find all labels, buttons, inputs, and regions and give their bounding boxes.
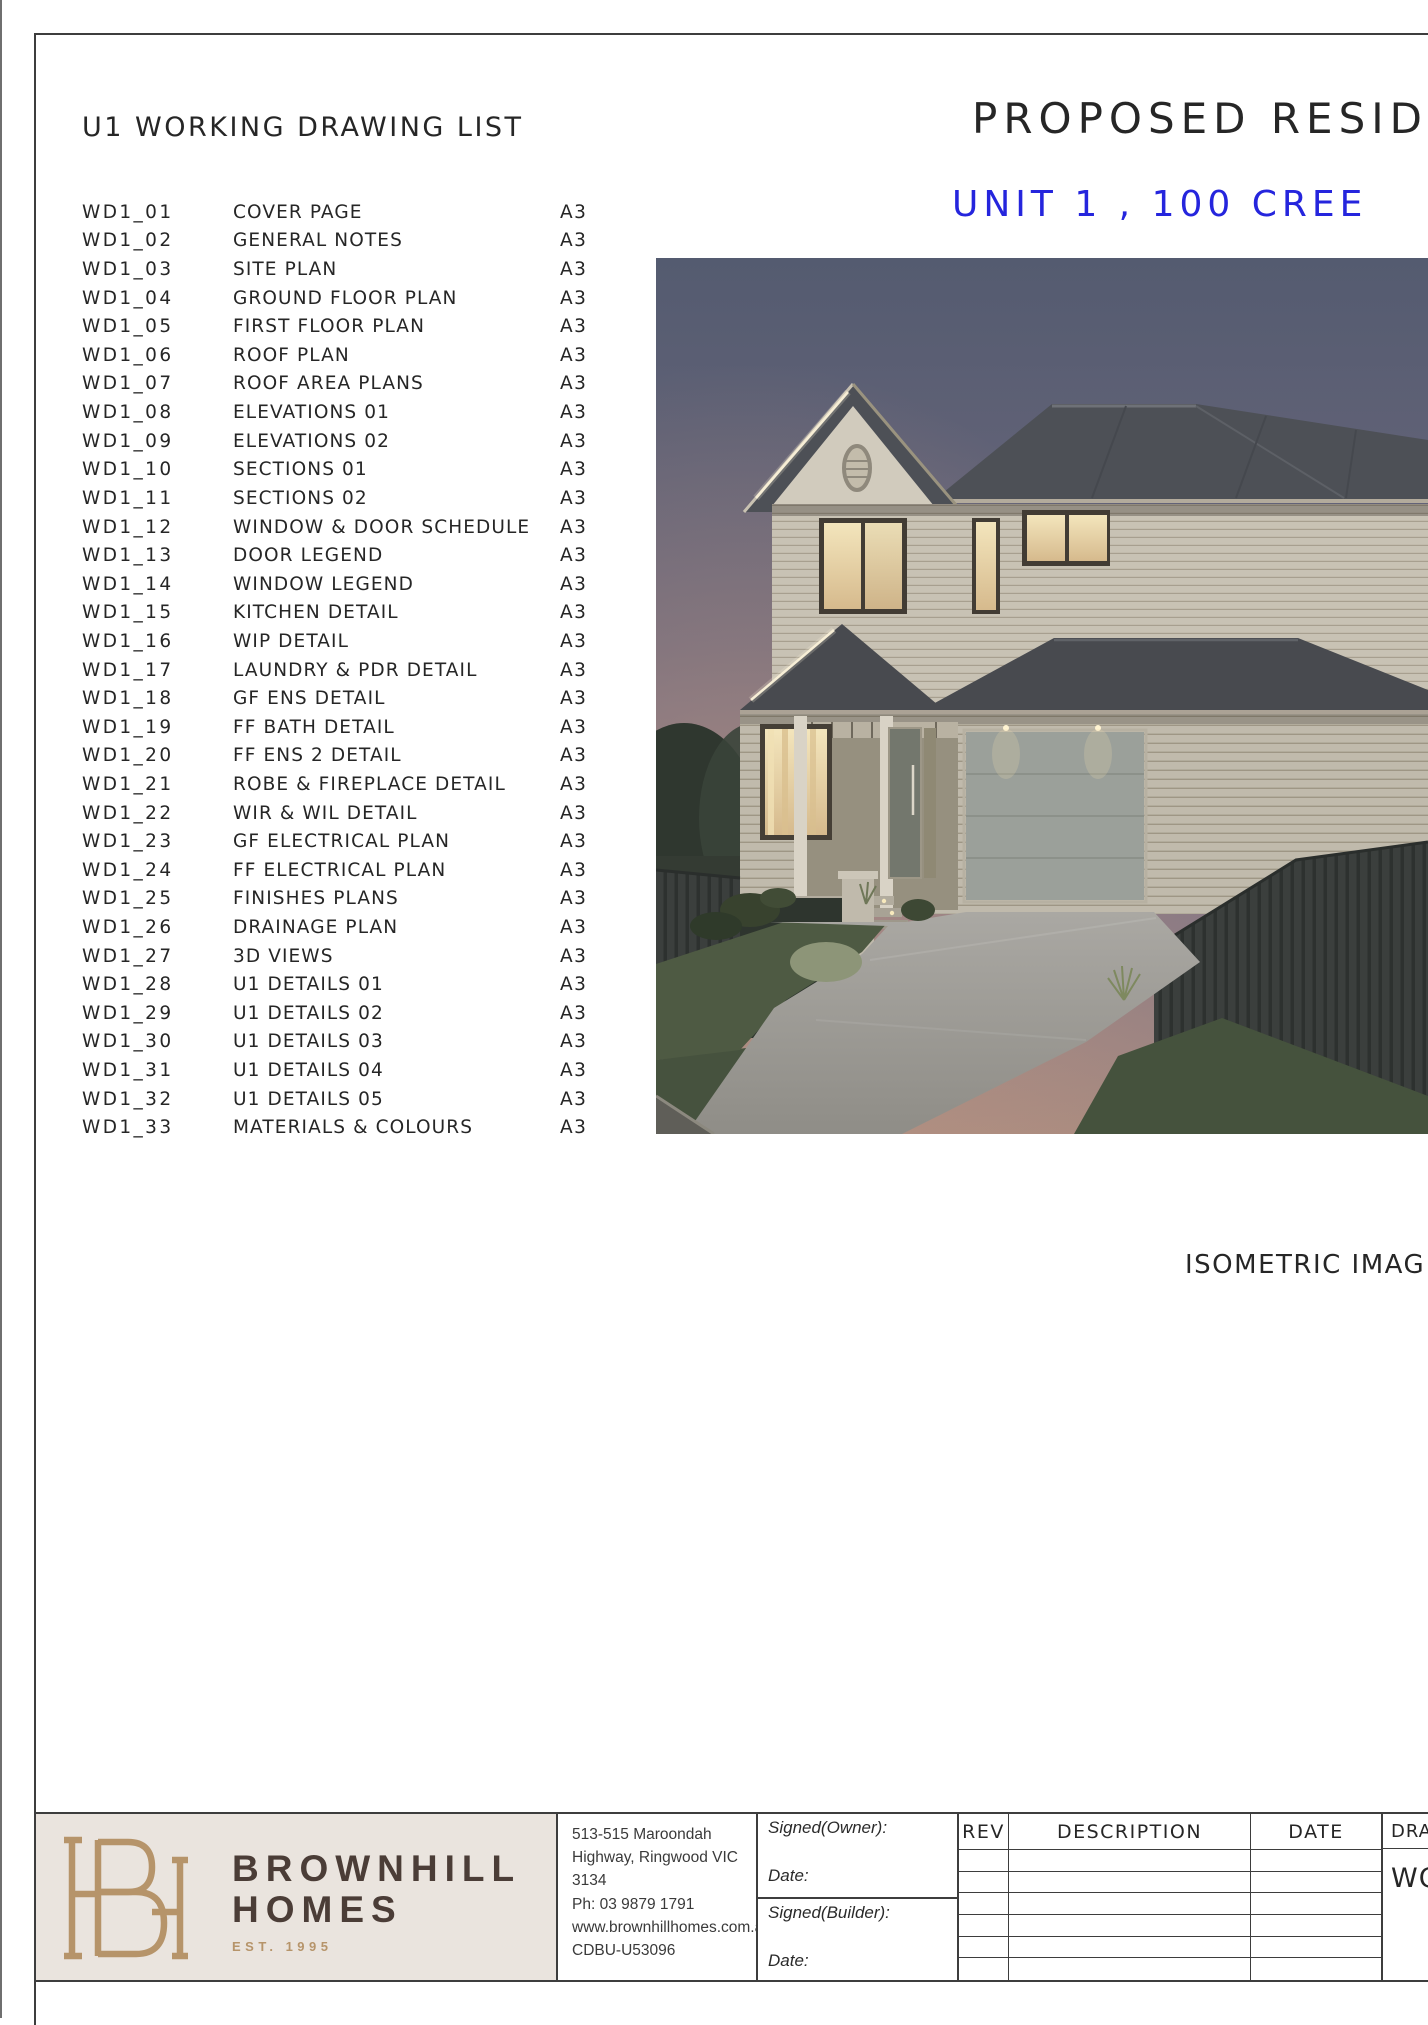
contact-line: 513-515 Maroondah bbox=[572, 1823, 756, 1846]
drawing-list-row: WD1_21ROBE & FIREPLACE DETAILA3 bbox=[82, 770, 702, 799]
porch-post bbox=[794, 716, 807, 910]
drawing-number: WD1_31 bbox=[82, 1060, 233, 1081]
drawing-list-row: WD1_05FIRST FLOOR PLANA3 bbox=[82, 312, 702, 341]
contact-line: www.brownhillhomes.com.au bbox=[572, 1916, 756, 1939]
drawing-list-row: WD1_11SECTIONS 02A3 bbox=[82, 484, 702, 513]
drawing-number: WD1_12 bbox=[82, 517, 233, 538]
sheet-size: A3 bbox=[560, 631, 620, 652]
drawing-title: SITE PLAN bbox=[233, 259, 560, 280]
sheet-size: A3 bbox=[560, 202, 620, 223]
sheet-size: A3 bbox=[560, 345, 620, 366]
drawing-number: WD1_09 bbox=[82, 431, 233, 452]
drawing-title: ROOF PLAN bbox=[233, 345, 560, 366]
drawing-number: WD1_21 bbox=[82, 774, 233, 795]
drawing-list-row: WD1_273D VIEWSA3 bbox=[82, 942, 702, 971]
revision-header-cell: DESCRIPTION bbox=[1009, 1814, 1251, 1850]
revision-empty-cell bbox=[959, 1850, 1009, 1872]
drawing-number: WD1_33 bbox=[82, 1117, 233, 1138]
revision-empty-cell bbox=[1251, 1958, 1381, 1980]
drawing-title: SECTIONS 01 bbox=[233, 459, 560, 480]
drawing-title: GF ELECTRICAL PLAN bbox=[233, 831, 560, 852]
drawing-number: WD1_32 bbox=[82, 1089, 233, 1110]
drawing-list-row: WD1_03SITE PLANA3 bbox=[82, 255, 702, 284]
drawing-title: U1 DETAILS 03 bbox=[233, 1031, 560, 1052]
drawing-title: FINISHES PLANS bbox=[233, 888, 560, 909]
sheet-size: A3 bbox=[560, 574, 620, 595]
sheet-size: A3 bbox=[560, 1117, 620, 1138]
drawing-list-row: WD1_30U1 DETAILS 03A3 bbox=[82, 1028, 702, 1057]
revision-empty-cell bbox=[1009, 1850, 1251, 1872]
drawing-title: GENERAL NOTES bbox=[233, 230, 560, 251]
sheet-size: A3 bbox=[560, 688, 620, 709]
drawing-title: MATERIALS & COLOURS bbox=[233, 1117, 560, 1138]
front-door bbox=[889, 728, 921, 878]
drawing-title: WINDOW LEGEND bbox=[233, 574, 560, 595]
paper-edge-line bbox=[0, 0, 2, 2018]
drawing-list-row: WD1_15KITCHEN DETAILA3 bbox=[82, 599, 702, 628]
revision-empty-cell bbox=[1251, 1850, 1381, 1872]
drawing-number: WD1_23 bbox=[82, 831, 233, 852]
sheet-size: A3 bbox=[560, 917, 620, 938]
sheet-size: A3 bbox=[560, 459, 620, 480]
signature-block: Signed(Owner): Date: Signed(Builder): Da… bbox=[756, 1812, 959, 1982]
revision-empty-cell bbox=[1251, 1872, 1381, 1894]
contact-line: Ph: 03 9879 1791 bbox=[572, 1893, 756, 1916]
sheet-size: A3 bbox=[560, 974, 620, 995]
drawing-number: WD1_25 bbox=[82, 888, 233, 909]
drawing-list-row: WD1_23GF ELECTRICAL PLANA3 bbox=[82, 827, 702, 856]
drawing-list-row: WD1_16WIP DETAILA3 bbox=[82, 627, 702, 656]
sheet-size: A3 bbox=[560, 259, 620, 280]
house-dusk-render-graphic bbox=[656, 258, 1428, 1134]
sheet-size: A3 bbox=[560, 803, 620, 824]
sheet-size: A3 bbox=[560, 860, 620, 881]
drawing-number: WD1_30 bbox=[82, 1031, 233, 1052]
sheet-size: A3 bbox=[560, 545, 620, 566]
drawing-title: FF BATH DETAIL bbox=[233, 717, 560, 738]
revision-empty-cell bbox=[1009, 1872, 1251, 1894]
sheet-size: A3 bbox=[560, 488, 620, 509]
drawing-number: WD1_29 bbox=[82, 1003, 233, 1024]
revision-empty-cell bbox=[1251, 1915, 1381, 1937]
drawing-list-row: WD1_29U1 DETAILS 02A3 bbox=[82, 999, 702, 1028]
isometric-caption: ISOMETRIC IMAG bbox=[1185, 1250, 1425, 1280]
drawing-title: COVER PAGE bbox=[233, 202, 560, 223]
drawing-list-row: WD1_17LAUNDRY & PDR DETAILA3 bbox=[82, 656, 702, 685]
builder-contact-lines: 513-515 MaroondahHighway, Ringwood VIC 3… bbox=[558, 1814, 756, 1962]
drawing-number: WD1_17 bbox=[82, 660, 233, 681]
drawing-list-row: WD1_07ROOF AREA PLANSA3 bbox=[82, 370, 702, 399]
signed-builder-label: Signed(Builder): bbox=[768, 1903, 890, 1923]
revision-empty-cell bbox=[1009, 1937, 1251, 1959]
drawing-list-row: WD1_01COVER PAGEA3 bbox=[82, 198, 702, 227]
sheet-size: A3 bbox=[560, 774, 620, 795]
revision-empty-cell bbox=[1009, 1958, 1251, 1980]
drawing-list-heading: U1 WORKING DRAWING LIST bbox=[82, 112, 524, 143]
sheet-size: A3 bbox=[560, 230, 620, 251]
drawing-number: WD1_18 bbox=[82, 688, 233, 709]
drawing-number: WD1_16 bbox=[82, 631, 233, 652]
drawing-number: WD1_02 bbox=[82, 230, 233, 251]
drawing-title: DRAINAGE PLAN bbox=[233, 917, 560, 938]
sheet-size: A3 bbox=[560, 373, 620, 394]
drawing-list-row: WD1_14WINDOW LEGENDA3 bbox=[82, 570, 702, 599]
drawing-title: FF ELECTRICAL PLAN bbox=[233, 860, 560, 881]
drawing-title: U1 DETAILS 02 bbox=[233, 1003, 560, 1024]
drawing-list-row: WD1_26DRAINAGE PLANA3 bbox=[82, 913, 702, 942]
drawing-number: WD1_28 bbox=[82, 974, 233, 995]
revision-empty-cell bbox=[959, 1937, 1009, 1959]
house-render-photo bbox=[656, 258, 1428, 1134]
drawing-list-row: WD1_06ROOF PLANA3 bbox=[82, 341, 702, 370]
sheet-size: A3 bbox=[560, 517, 620, 538]
sheet-size: A3 bbox=[560, 1089, 620, 1110]
drawing-number: WD1_27 bbox=[82, 946, 233, 967]
sheet-size: A3 bbox=[560, 717, 620, 738]
drawing-number: WD1_24 bbox=[82, 860, 233, 881]
sheet-size: A3 bbox=[560, 888, 620, 909]
drawing-list-row: WD1_02GENERAL NOTESA3 bbox=[82, 227, 702, 256]
drawing-number: WD1_11 bbox=[82, 488, 233, 509]
signed-owner-label: Signed(Owner): bbox=[768, 1818, 887, 1838]
drawing-number: WD1_15 bbox=[82, 602, 233, 623]
revision-empty-cell bbox=[959, 1893, 1009, 1915]
brand-wordmark: BROWNHILL HOMES EST. 1995 bbox=[232, 1848, 521, 1954]
drawing-list-row: WD1_24FF ELECTRICAL PLANA3 bbox=[82, 856, 702, 885]
revision-empty-cell bbox=[1009, 1893, 1251, 1915]
drawing-title: U1 DETAILS 01 bbox=[233, 974, 560, 995]
drawing-number: WD1_14 bbox=[82, 574, 233, 595]
sheet-size: A3 bbox=[560, 431, 620, 452]
drawing-list-row: WD1_09ELEVATIONS 02A3 bbox=[82, 427, 702, 456]
drawing-list-row: WD1_12WINDOW & DOOR SCHEDULEA3 bbox=[82, 513, 702, 542]
drawing-list-row: WD1_18GF ENS DETAILA3 bbox=[82, 684, 702, 713]
owner-signature-cell: Signed(Owner): Date: bbox=[758, 1814, 957, 1899]
drawing-number: WD1_04 bbox=[82, 288, 233, 309]
brand-monogram-icon bbox=[58, 1832, 208, 1964]
drawing-list-row: WD1_08ELEVATIONS 01A3 bbox=[82, 398, 702, 427]
drawing-list-row: WD1_20FF ENS 2 DETAILA3 bbox=[82, 742, 702, 771]
sheet-size: A3 bbox=[560, 660, 620, 681]
drawing-info-value: WO bbox=[1383, 1849, 1428, 1894]
drawing-title: WIP DETAIL bbox=[233, 631, 560, 652]
revision-empty-cell bbox=[959, 1915, 1009, 1937]
drawing-title: WINDOW & DOOR SCHEDULE bbox=[233, 517, 560, 538]
project-subtitle: UNIT 1 , 100 CREE bbox=[952, 184, 1367, 225]
drawing-number: WD1_20 bbox=[82, 745, 233, 766]
drawing-list-row: WD1_04GROUND FLOOR PLANA3 bbox=[82, 284, 702, 313]
sheet-size: A3 bbox=[560, 602, 620, 623]
sheet-size: A3 bbox=[560, 1003, 620, 1024]
drawing-number: WD1_10 bbox=[82, 459, 233, 480]
drawing-number: WD1_22 bbox=[82, 803, 233, 824]
brand-name-bottom: HOMES bbox=[232, 1889, 521, 1930]
drawing-title: KITCHEN DETAIL bbox=[233, 602, 560, 623]
revision-empty-cell bbox=[959, 1958, 1009, 1980]
drawing-list-row: WD1_32U1 DETAILS 05A3 bbox=[82, 1085, 702, 1114]
drawing-number: WD1_01 bbox=[82, 202, 233, 223]
sheet-size: A3 bbox=[560, 946, 620, 967]
drawing-title: WIR & WIL DETAIL bbox=[233, 803, 560, 824]
brand-name-top: BROWNHILL bbox=[232, 1848, 521, 1889]
drawing-list-row: WD1_33MATERIALS & COLOURSA3 bbox=[82, 1114, 702, 1143]
sheet-size: A3 bbox=[560, 831, 620, 852]
revision-header-cell: DATE bbox=[1251, 1814, 1381, 1850]
drawing-title: ROOF AREA PLANS bbox=[233, 373, 560, 394]
brand-established: EST. 1995 bbox=[232, 1939, 521, 1954]
revision-empty-cell bbox=[1251, 1893, 1381, 1915]
sheet-size: A3 bbox=[560, 316, 620, 337]
drawing-title: DOOR LEGEND bbox=[233, 545, 560, 566]
drawing-title: ELEVATIONS 01 bbox=[233, 402, 560, 423]
drawing-title: U1 DETAILS 04 bbox=[233, 1060, 560, 1081]
drawing-list-row: WD1_28U1 DETAILS 01A3 bbox=[82, 970, 702, 999]
project-title: PROPOSED RESID bbox=[972, 94, 1428, 143]
drawing-info-column: DRAW WO bbox=[1383, 1812, 1428, 1982]
sheet-size: A3 bbox=[560, 1060, 620, 1081]
drawing-number: WD1_19 bbox=[82, 717, 233, 738]
drawing-title: FIRST FLOOR PLAN bbox=[233, 316, 560, 337]
drawing-list-row: WD1_31U1 DETAILS 04A3 bbox=[82, 1056, 702, 1085]
revision-table-grid: REVDESCRIPTIONDATE bbox=[957, 1812, 1383, 1982]
contact-line: CDBU-U53096 bbox=[572, 1939, 756, 1962]
drawing-list-row: WD1_10SECTIONS 01A3 bbox=[82, 455, 702, 484]
drawing-title: FF ENS 2 DETAIL bbox=[233, 745, 560, 766]
drawing-number: WD1_03 bbox=[82, 259, 233, 280]
revision-empty-cell bbox=[1251, 1937, 1381, 1959]
revision-empty-cell bbox=[959, 1872, 1009, 1894]
revision-empty-cell bbox=[1009, 1915, 1251, 1937]
owner-date-label: Date: bbox=[768, 1866, 809, 1886]
drawing-list-row: WD1_22WIR & WIL DETAILA3 bbox=[82, 799, 702, 828]
drawing-title: GROUND FLOOR PLAN bbox=[233, 288, 560, 309]
brand-logo-box: BROWNHILL HOMES EST. 1995 bbox=[34, 1812, 558, 1982]
revision-header-cell: REV bbox=[959, 1814, 1009, 1850]
drawing-number: WD1_07 bbox=[82, 373, 233, 394]
drawing-number: WD1_26 bbox=[82, 917, 233, 938]
drawing-number: WD1_08 bbox=[82, 402, 233, 423]
drawing-title: GF ENS DETAIL bbox=[233, 688, 560, 709]
builder-signature-cell: Signed(Builder): Date: bbox=[758, 1899, 957, 1980]
builder-date-label: Date: bbox=[768, 1951, 809, 1971]
sheet-size: A3 bbox=[560, 402, 620, 423]
drawing-title: ROBE & FIREPLACE DETAIL bbox=[233, 774, 560, 795]
contact-line: Highway, Ringwood VIC 3134 bbox=[572, 1846, 756, 1892]
drawing-title: ELEVATIONS 02 bbox=[233, 431, 560, 452]
drawing-title: SECTIONS 02 bbox=[233, 488, 560, 509]
drawing-title: LAUNDRY & PDR DETAIL bbox=[233, 660, 560, 681]
drawing-number: WD1_06 bbox=[82, 345, 233, 366]
drawing-info-header: DRAW bbox=[1383, 1814, 1428, 1849]
drawing-title: U1 DETAILS 05 bbox=[233, 1089, 560, 1110]
drawing-list-row: WD1_13DOOR LEGENDA3 bbox=[82, 541, 702, 570]
drawing-list-rows: WD1_01COVER PAGEA3WD1_02GENERAL NOTESA3W… bbox=[82, 198, 702, 1142]
drawing-list-row: WD1_19FF BATH DETAILA3 bbox=[82, 713, 702, 742]
garage bbox=[964, 725, 1146, 902]
sheet-size: A3 bbox=[560, 1031, 620, 1052]
drawing-number: WD1_05 bbox=[82, 316, 233, 337]
drawing-number: WD1_13 bbox=[82, 545, 233, 566]
sheet-size: A3 bbox=[560, 745, 620, 766]
sheet-size: A3 bbox=[560, 288, 620, 309]
drawing-list-row: WD1_25FINISHES PLANSA3 bbox=[82, 885, 702, 914]
builder-contact-box: 513-515 MaroondahHighway, Ringwood VIC 3… bbox=[556, 1812, 758, 1982]
drawing-title: 3D VIEWS bbox=[233, 946, 560, 967]
